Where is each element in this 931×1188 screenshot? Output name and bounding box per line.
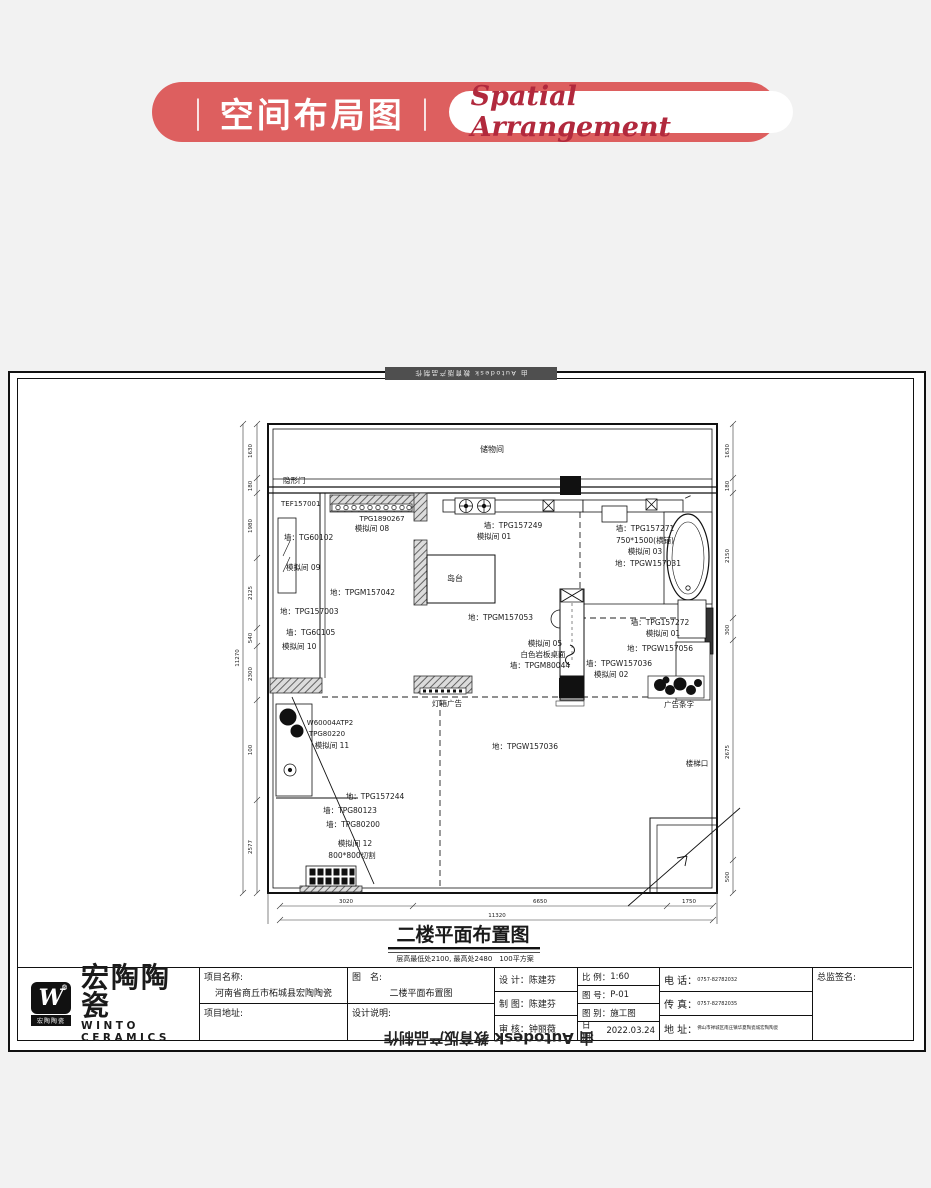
scale-value: 1:60 (610, 972, 629, 982)
label-room-08: 模拟间 08 (355, 523, 390, 533)
drawing-title-text: 二楼平面布置图 (396, 923, 529, 946)
stair-corner (628, 808, 740, 906)
svg-text:100: 100 (248, 744, 254, 755)
contact-column: 电 话： 0757-82782032 传 真： 0757-82782035 地 … (659, 968, 812, 1040)
svg-text:6650: 6650 (533, 899, 547, 905)
signature-column: 总监签名: (812, 968, 911, 1040)
drafter-cell: 制 图： 陈建芬 (495, 992, 577, 1016)
signature-label: 总监签名: (817, 973, 856, 983)
svg-text:300: 300 (725, 624, 731, 635)
winto-logo: W ® 宏陶陶瓷 (31, 982, 71, 1026)
label-room-05: 模拟间 05 (528, 638, 563, 648)
label-wall-tpg157249: 墙：TPG157249 (484, 520, 543, 530)
label-tpg1890267: TPG1890267 (358, 515, 404, 523)
svg-text:1630: 1630 (248, 444, 254, 458)
project-info-column: 项目名称: 河南省商丘市柘城县宏陶陶瓷 项目地址: (199, 968, 347, 1040)
figure-no-label: 图 号： (582, 989, 610, 1001)
scale-label: 比 例： (582, 971, 610, 983)
drafter-label: 制 图： (499, 997, 529, 1010)
label-floor-tpg157003: 地：TPG157003 (280, 606, 339, 616)
addr-label: 地 址： (664, 1021, 697, 1036)
figure-no-value: P-01 (610, 990, 629, 1000)
label-wall-tg60105: 墙：TG60105 (286, 627, 335, 637)
label-stair-opening: 楼梯口 (686, 758, 709, 768)
logo-mark-icon: W ® (31, 982, 71, 1014)
label-room-01-kitchen: 模拟间 01 (477, 531, 512, 541)
svg-text:1630: 1630 (725, 444, 731, 458)
label-wall-tpg157272: 墙：TPG157272 (631, 617, 690, 627)
drafter-value: 陈建芬 (529, 997, 556, 1010)
figure-name-label: 图 名: (352, 970, 490, 983)
label-800x800-cut: 800*800切割 (328, 850, 375, 860)
label-wall-tg60102: 墙：TG60102 (284, 532, 333, 542)
fax-cell: 传 真： 0757-82782035 (660, 992, 812, 1016)
scale-cell: 比 例： 1:60 (578, 968, 659, 986)
svg-text:1980: 1980 (248, 519, 254, 533)
label-floor-tpgw157056: 地：TPGW157056 (627, 643, 693, 653)
label-floor-tpg157244: 地：TPG157244 (346, 791, 405, 801)
label-room-09: 模拟间 09 (286, 562, 321, 572)
addr-value: 佛山市禅城区南庄镇华夏陶瓷城宏陶陶瓷 (697, 1025, 778, 1031)
label-wall-tpgm80044: 墙：TPGM80044 (510, 660, 570, 670)
designer-value: 陈建芬 (529, 973, 556, 986)
label-storage-room: 储物间 (480, 444, 504, 454)
svg-text:11320: 11320 (488, 913, 506, 919)
svg-text:2125: 2125 (248, 586, 254, 600)
figure-no-cell: 图 号： P-01 (578, 986, 659, 1004)
svg-text:11270: 11270 (235, 649, 241, 667)
svg-text:2577: 2577 (248, 840, 254, 854)
svg-text:3020: 3020 (339, 899, 353, 905)
figure-type-label: 图 别： (582, 1007, 610, 1019)
svg-text:540: 540 (248, 632, 254, 643)
label-room-03: 模拟间 03 (628, 546, 663, 556)
drawing-title-note: 层高最低处2100, 最高处2480 100平方案 (396, 954, 533, 963)
svg-text:1750: 1750 (682, 899, 696, 905)
label-wall-tpg80200: 墙：TPG80200 (326, 819, 380, 829)
tel-cell: 电 话： 0757-82782032 (660, 968, 812, 992)
logo-cell: W ® 宏陶陶瓷 宏陶陶瓷 WINTO CERAMICS (17, 968, 199, 1040)
label-room-12: 模拟间 12 (338, 838, 373, 848)
svg-text:2150: 2150 (725, 549, 731, 563)
label-lightbox-ad: 灯箱广告 (432, 698, 462, 708)
label-floor-tpgw157031: 地：TPGW157031 (615, 558, 681, 568)
plant-icon (648, 676, 704, 698)
svg-text:500: 500 (725, 871, 731, 882)
registered-mark: ® (61, 983, 68, 992)
label-white-slab: 白色岩板桌面 (521, 649, 566, 659)
signature-cell: 总监签名: (813, 968, 911, 1040)
label-room-10: 模拟间 10 (282, 641, 317, 651)
project-name-cell: 项目名称: 河南省商丘市柘城县宏陶陶瓷 (200, 968, 347, 1004)
fax-value: 0757-82782035 (697, 1001, 737, 1007)
addr-cell: 地 址： 佛山市禅城区南庄镇华夏陶瓷城宏陶陶瓷 (660, 1016, 812, 1040)
label-tef157001: TEF157001 (280, 500, 320, 508)
dimension-lines (240, 421, 736, 924)
label-wall-tpg157271: 墙：TPG157271 (616, 523, 675, 533)
figure-name-cell: 图 名: 二楼平面布置图 (348, 968, 494, 1004)
svg-text:2675: 2675 (725, 745, 731, 759)
kitchen-counter (443, 498, 683, 522)
label-w60004atp2: W60004ATP2 (307, 719, 353, 727)
label-floor-tpgm157042: 地：TPGM157042 (330, 587, 395, 597)
label-floor-corridor: 地：TPGW157036 (492, 741, 558, 751)
label-hidden-door: 隐形门 (283, 475, 306, 485)
project-name-label: 项目名称: (204, 970, 343, 983)
designer-cell: 设 计： 陈建芬 (495, 968, 577, 992)
figure-type-value: 施工图 (610, 1007, 636, 1019)
tel-label: 电 话： (664, 972, 697, 987)
fax-label: 传 真： (664, 996, 697, 1011)
label-tpg80220: TPG80220 (308, 730, 345, 738)
label-room-02: 模拟间 02 (594, 669, 629, 679)
label-room-11: 模拟间 11 (315, 740, 350, 750)
figure-name-value: 二楼平面布置图 (352, 986, 490, 999)
label-ad-letters: 广告条字 (664, 699, 694, 709)
label-island: 岛台 (447, 573, 463, 583)
label-wall-tpgw157036: 墙：TPGW157036 (586, 658, 652, 668)
svg-text:2300: 2300 (248, 667, 254, 681)
project-addr-cell: 项目地址: (200, 1004, 347, 1040)
drawing-title: 二楼平面布置图 层高最低处2100, 最高处2480 100平方案 (388, 923, 540, 963)
figure-type-cell: 图 别： 施工图 (578, 1004, 659, 1022)
label-750x1500: 750*1500(横铺) (616, 535, 674, 545)
brand-name-en: WINTO CERAMICS (81, 1020, 199, 1044)
design-note-label: 设计说明: (352, 1006, 490, 1019)
svg-text:180: 180 (248, 480, 254, 491)
label-floor-tpgm157053: 地：TPGM157053 (468, 612, 533, 622)
tel-value: 0757-82782032 (697, 977, 737, 983)
svg-text:180: 180 (725, 480, 731, 491)
project-addr-label: 项目地址: (204, 1006, 343, 1019)
label-wall-tpg80123: 墙：TPG80123 (323, 805, 377, 815)
logo-band-text: 宏陶陶瓷 (31, 1015, 71, 1026)
page: { "header": { "bar": "|", "title_cn": "空… (0, 0, 931, 1188)
project-name-value: 河南省商丘市柘城县宏陶陶瓷 (204, 986, 343, 999)
label-room-01-right: 模拟间 01 (646, 628, 681, 638)
brand-name-cn: 宏陶陶瓷 (81, 964, 199, 1020)
autodesk-watermark-bottom: 由 Autodesk 教育版产品制作 (360, 1028, 618, 1048)
brand-text: 宏陶陶瓷 WINTO CERAMICS (81, 964, 199, 1044)
designer-label: 设 计： (499, 973, 529, 986)
